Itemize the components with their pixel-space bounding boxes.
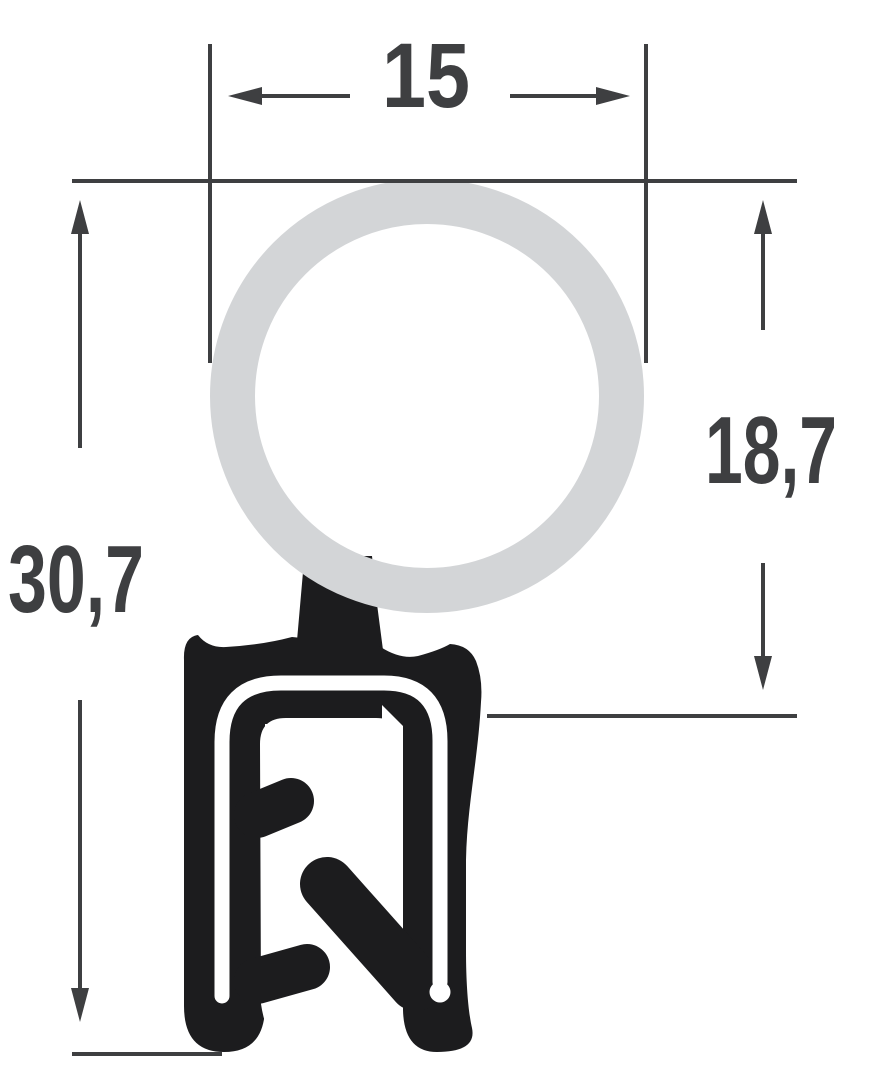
seal-profile-diagram: 15 30,7 18,7 <box>0 0 871 1080</box>
dim-label-bulb-height: 18,7 <box>705 397 837 504</box>
grip-fin-lower <box>257 967 307 981</box>
grip-fin-upper <box>257 801 291 815</box>
channel-eyelet <box>430 982 451 1003</box>
arrowhead-down-bulb <box>754 656 772 690</box>
arrowhead-up-bulb <box>754 200 772 234</box>
dim-label-width: 15 <box>382 25 470 127</box>
diagram-canvas: 15 30,7 18,7 <box>0 0 871 1080</box>
dimension-labels: 15 30,7 18,7 <box>8 25 837 633</box>
arrowhead-left <box>228 87 262 105</box>
bulb-seal-ring <box>233 202 622 591</box>
arrowhead-up-total <box>71 200 89 234</box>
arrowhead-right <box>596 87 630 105</box>
arrowhead-down-total <box>71 988 89 1022</box>
dim-label-total-height: 30,7 <box>8 526 144 633</box>
